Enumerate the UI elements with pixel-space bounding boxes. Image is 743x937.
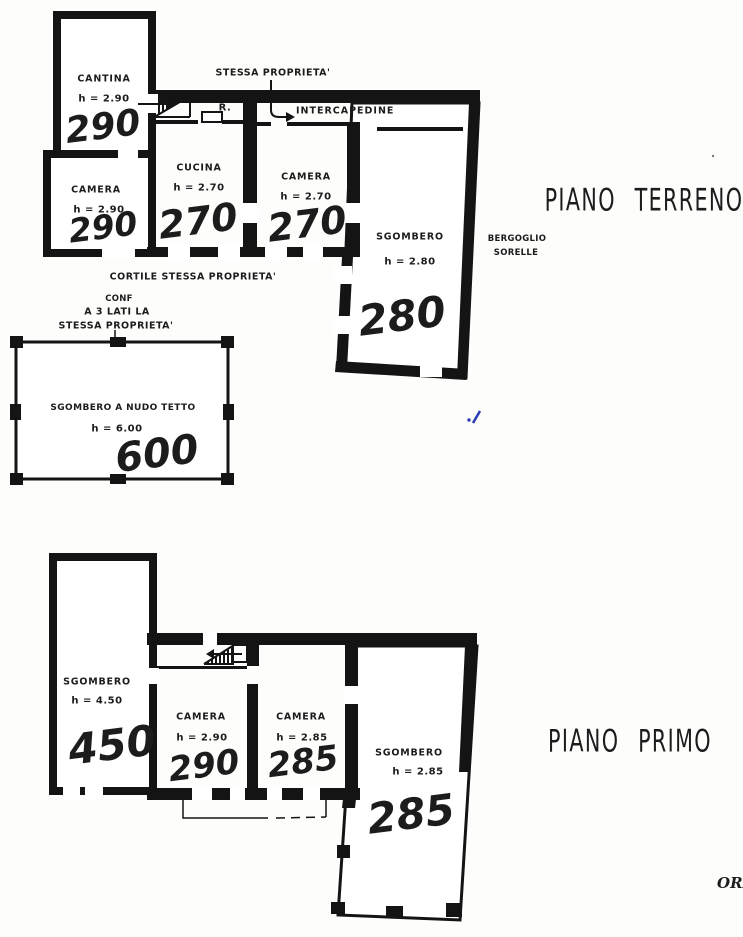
scan-speck [712, 155, 714, 157]
room-label-cucina: CUCINA [176, 163, 221, 174]
room-value-gf-camera1: 290 [66, 203, 139, 250]
room-height-cantina: h = 2.90 [78, 94, 129, 105]
room-label-ff-camera2: CAMERA [276, 712, 326, 723]
door-leaf [202, 112, 222, 122]
ground-floor-title: PIANO TERRENO [545, 183, 743, 218]
room-height-ff-camera1: h = 2.90 [176, 733, 227, 744]
room-height-ff-sgombero-right: h = 2.85 [392, 767, 443, 778]
courtyard-note: CORTILE STESSA PROPRIETA' [110, 272, 277, 283]
stair-label: R. [219, 103, 232, 114]
confine-note-3: STESSA PROPRIETA' [59, 321, 174, 332]
blue-pen-mark [467, 411, 480, 423]
room-height-ff-sgombero-left: h = 4.50 [71, 696, 122, 707]
first-floor-title: PIANO PRIMO [548, 724, 712, 759]
room-label-ff-camera1: CAMERA [176, 712, 226, 723]
room-label-ff-sgombero-left: SGOMBERO [63, 677, 131, 688]
neighbor-name-1: BERGOGLIO [488, 234, 547, 244]
room-label-gf-sgombero: SGOMBERO [376, 232, 444, 243]
room-label-ff-sgombero-right: SGOMBERO [375, 748, 443, 759]
intercapedine-label: INTERCAPEDINE [296, 106, 394, 117]
room-label-cantina: CANTINA [77, 74, 130, 85]
room-label-gf-camera1: CAMERA [71, 185, 121, 196]
page-corner-text: ORI [717, 874, 743, 892]
door-gap [118, 146, 138, 160]
neighbor-name-2: SORELLE [494, 248, 538, 258]
room-label-nudo-tetto: SGOMBERO A NUDO TETTO [50, 403, 195, 413]
confine-note-2: A 3 LATI LA [84, 307, 149, 318]
room-height-cucina: h = 2.70 [173, 183, 224, 194]
boundary-note: STESSA PROPRIETA' [216, 68, 331, 79]
room-label-gf-camera2: CAMERA [281, 172, 331, 183]
balcony-outline [183, 800, 326, 818]
floor-plan-page: CANTINA h = 2.90 290 CAMERA h = 2.90 290… [0, 0, 743, 937]
confine-note-1: CONF [105, 294, 133, 304]
room-height-gf-sgombero: h = 2.80 [384, 257, 435, 268]
